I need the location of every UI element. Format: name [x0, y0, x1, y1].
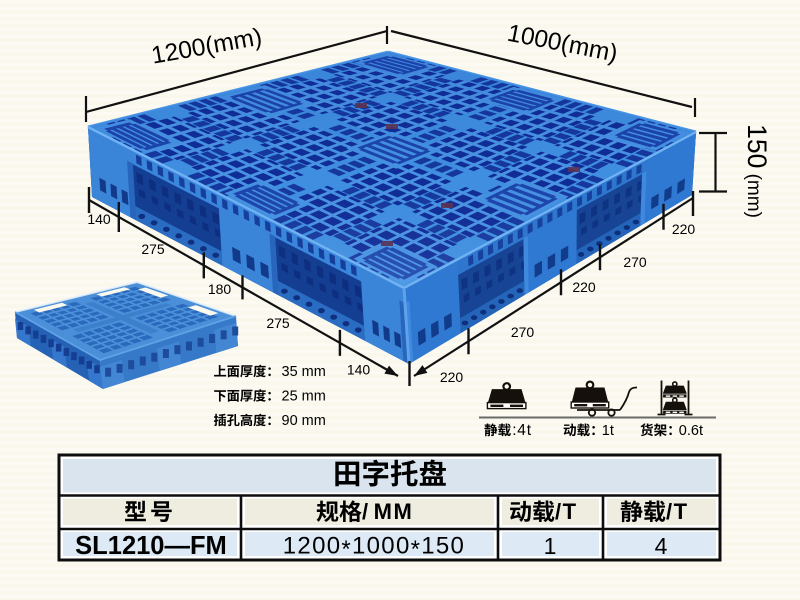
svg-text:/T: /T	[666, 499, 689, 524]
svg-text:90 mm: 90 mm	[282, 413, 326, 429]
svg-text::4t: :4t	[512, 422, 532, 439]
svg-text:275: 275	[266, 315, 290, 331]
svg-text:270: 270	[511, 324, 535, 340]
svg-text:SL1210—FM: SL1210—FM	[75, 532, 227, 560]
svg-text:220: 220	[672, 221, 696, 237]
svg-text:140: 140	[347, 362, 371, 378]
svg-text:0.6t: 0.6t	[679, 423, 703, 439]
svg-text:4: 4	[655, 533, 668, 559]
svg-text:/T: /T	[555, 499, 578, 524]
svg-text:35 mm: 35 mm	[282, 364, 326, 380]
svg-text:140: 140	[87, 211, 111, 227]
svg-text:1: 1	[544, 533, 557, 559]
svg-text:275: 275	[141, 241, 165, 257]
svg-text:180: 180	[208, 281, 232, 297]
svg-text:1t: 1t	[602, 423, 614, 439]
svg-text:220: 220	[440, 369, 464, 385]
svg-text:1200*1000*150: 1200*1000*150	[283, 533, 465, 564]
svg-text:270: 270	[623, 254, 647, 270]
svg-text:25 mm: 25 mm	[282, 389, 326, 405]
svg-text:220: 220	[572, 279, 596, 295]
